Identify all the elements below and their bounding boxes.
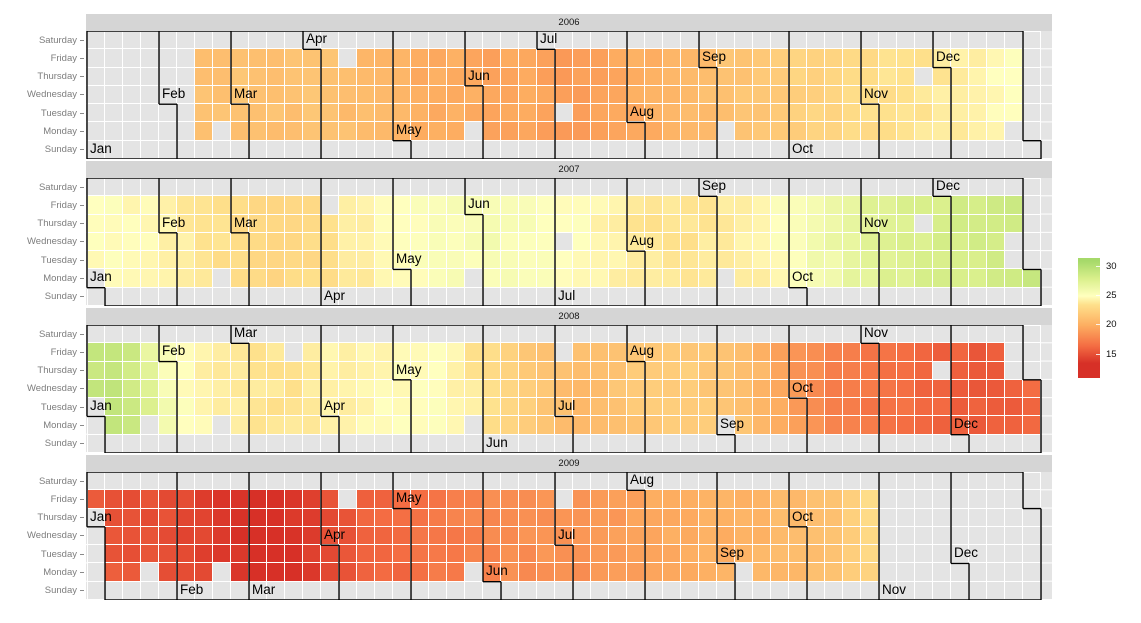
day-cell [483,251,501,269]
day-cell [969,472,987,490]
day-cell [195,509,213,527]
day-cell [393,31,411,49]
day-cell [213,343,231,361]
day-cell [339,196,357,214]
day-cell [537,86,555,104]
month-label: Aug [628,470,654,490]
day-cell [591,398,609,416]
day-cell [501,380,519,398]
day-cell [951,490,969,508]
day-cell [771,288,789,306]
day-cell [519,251,537,269]
day-cell [483,582,501,600]
day-cell [933,215,951,233]
month-label: Apr [322,396,345,416]
day-cell [645,122,663,140]
day-cell [501,49,519,67]
day-cell [483,398,501,416]
month-label: Feb [160,341,185,361]
day-cell [807,343,825,361]
day-cell [519,343,537,361]
month-label: Oct [790,378,813,398]
day-cell [429,416,447,434]
day-cell [537,416,555,434]
day-cell [141,398,159,416]
day-cell [213,233,231,251]
axis-tick [80,278,84,279]
day-cell [753,251,771,269]
day-cell [861,509,879,527]
day-cell [285,122,303,140]
axis-tick [80,535,84,536]
day-cell [105,362,123,380]
day-cell [573,86,591,104]
day-cell [681,490,699,508]
day-cell [609,398,627,416]
day-cell [465,141,483,159]
day-cell [447,343,465,361]
day-cell [249,490,267,508]
day-cell [447,251,465,269]
day-cell [267,251,285,269]
day-cell [915,325,933,343]
day-cell [213,49,231,67]
day-cell [249,509,267,527]
colorbar-legend: 30252015 [1078,258,1138,378]
day-cell [195,380,213,398]
day-cell [1005,343,1023,361]
axis-tick [80,149,84,150]
month-label: Feb [160,84,185,104]
day-cell [951,563,969,581]
day-cell [339,104,357,122]
day-cell [789,196,807,214]
day-cell [1005,509,1023,527]
day-cell [123,122,141,140]
day-cell [789,233,807,251]
day-cell [825,490,843,508]
day-cell [177,416,195,434]
day-cell [591,343,609,361]
day-cell [213,527,231,545]
day-cell [951,509,969,527]
day-cell [465,251,483,269]
day-cell [609,563,627,581]
day-cell [789,398,807,416]
day-cell [501,86,519,104]
day-cell [609,325,627,343]
day-cell [699,269,717,287]
day-cell [285,582,303,600]
facet-panel: JanFebMarAprMayJunJulAugSepOctNovDec [86,178,1052,306]
weekday-label: Thursday [0,362,86,380]
day-cell [393,196,411,214]
day-cell [555,251,573,269]
day-cell [915,416,933,434]
day-cell [141,288,159,306]
day-cell [897,545,915,563]
weekday-label: Saturday [0,472,86,490]
day-cell [987,122,1005,140]
day-cell [231,141,249,159]
axis-tick [80,517,84,518]
day-cell [879,233,897,251]
day-cell [87,49,105,67]
day-cell [321,141,339,159]
day-cell [699,563,717,581]
day-cell [699,343,717,361]
facet-2009: 2009SaturdayFridayThursdayWednesdayTuesd… [0,455,1052,600]
day-cell [501,215,519,233]
day-cell [177,545,195,563]
day-cell [321,325,339,343]
day-cell [951,86,969,104]
month-label: Mar [250,580,275,600]
day-cell [735,582,753,600]
day-cell [105,31,123,49]
day-cell [249,416,267,434]
day-cell [879,416,897,434]
day-cell [141,527,159,545]
day-cell [645,178,663,196]
day-cell [609,472,627,490]
day-cell [465,398,483,416]
day-cell [231,509,249,527]
facet-panel: JanFebMarAprMayJunJulAugSepOctNovDec [86,31,1052,159]
day-cell [591,233,609,251]
day-cell [663,490,681,508]
day-cell [267,509,285,527]
day-cell [195,122,213,140]
day-cell [825,49,843,67]
day-cell [519,196,537,214]
day-cell [645,398,663,416]
day-cell-grid [87,325,1041,453]
day-cell [429,68,447,86]
month-label: Apr [322,525,345,545]
day-cell [771,416,789,434]
day-cell [375,68,393,86]
day-cell [447,49,465,67]
day-cell [1005,325,1023,343]
day-cell [879,527,897,545]
day-cell [735,288,753,306]
day-cell [519,472,537,490]
day-cell [663,196,681,214]
day-cell [303,141,321,159]
day-cell [519,178,537,196]
day-cell [933,269,951,287]
day-cell [87,68,105,86]
day-cell [969,343,987,361]
day-cell [825,31,843,49]
day-cell [735,68,753,86]
month-label: Dec [934,47,960,67]
day-cell [447,269,465,287]
day-cell [159,288,177,306]
day-cell [447,104,465,122]
day-cell [339,178,357,196]
day-cell [681,68,699,86]
day-cell [735,472,753,490]
day-cell [501,178,519,196]
day-cell [969,490,987,508]
weekday-label: Tuesday [0,545,86,563]
day-cell [663,86,681,104]
day-cell [573,288,591,306]
day-cell [627,122,645,140]
day-cell [789,472,807,490]
month-label: Jun [484,433,508,453]
day-cell [1023,233,1041,251]
day-cell [159,49,177,67]
day-cell [105,215,123,233]
day-cell [303,563,321,581]
day-cell [357,509,375,527]
day-cell [681,196,699,214]
day-cell [447,545,465,563]
day-cell [753,86,771,104]
day-cell [483,527,501,545]
month-label: Jun [466,194,490,214]
day-cell [735,380,753,398]
day-cell [375,288,393,306]
day-cell [897,104,915,122]
day-cell [1005,582,1023,600]
day-cell [303,104,321,122]
day-cell [717,196,735,214]
day-cell [321,178,339,196]
day-cell [735,343,753,361]
day-cell [123,343,141,361]
day-cell [591,288,609,306]
day-cell [447,563,465,581]
day-cell [231,398,249,416]
day-cell [1023,435,1041,453]
month-label: Aug [628,102,654,122]
day-cell [393,416,411,434]
day-cell [771,269,789,287]
day-cell [969,380,987,398]
day-cell [807,86,825,104]
day-cell [825,104,843,122]
day-cell [231,251,249,269]
day-cell [825,233,843,251]
day-cell [141,251,159,269]
day-cell [393,288,411,306]
day-cell [1005,416,1023,434]
day-cell [879,269,897,287]
day-cell [267,288,285,306]
day-cell [555,141,573,159]
day-cell [987,416,1005,434]
day-cell [123,49,141,67]
day-cell [897,251,915,269]
day-cell [141,380,159,398]
day-cell [699,509,717,527]
day-cell [591,563,609,581]
day-cell [681,545,699,563]
day-cell [987,68,1005,86]
day-cell [321,343,339,361]
day-cell [429,325,447,343]
day-cell [789,215,807,233]
day-cell [411,582,429,600]
day-cell [609,362,627,380]
day-cell [321,233,339,251]
day-cell [807,68,825,86]
day-cell [555,104,573,122]
day-cell [267,215,285,233]
day-cell [465,362,483,380]
day-cell [663,362,681,380]
day-cell [537,178,555,196]
day-cell [609,49,627,67]
axis-tick [80,187,84,188]
weekday-label: Saturday [0,31,86,49]
day-cell [411,398,429,416]
day-cell [303,233,321,251]
day-cell [537,398,555,416]
day-cell [393,398,411,416]
day-cell [897,435,915,453]
day-cell [465,527,483,545]
day-cell [681,343,699,361]
facet-title: 2009 [558,458,579,469]
calendar-heatmap-figure: 2006SaturdayFridayThursdayWednesdayTuesd… [0,0,1141,623]
day-cell [807,398,825,416]
day-cell [717,233,735,251]
day-cell [609,178,627,196]
day-cell [285,435,303,453]
day-cell [609,380,627,398]
day-cell [573,68,591,86]
day-cell [573,325,591,343]
day-cell [753,31,771,49]
day-cell [1023,325,1041,343]
day-cell [951,233,969,251]
day-cell [699,325,717,343]
day-cell [375,582,393,600]
day-cell [951,251,969,269]
day-cell [483,104,501,122]
day-cell [555,49,573,67]
day-cell [663,215,681,233]
day-cell [483,269,501,287]
day-cell [249,527,267,545]
day-cell [1005,269,1023,287]
month-label: May [394,120,422,140]
day-cell [231,582,249,600]
month-label: Mar [232,213,257,233]
day-cell [735,31,753,49]
day-cell [141,233,159,251]
day-cell [573,31,591,49]
day-cell [591,509,609,527]
day-cell [393,325,411,343]
axis-tick [80,572,84,573]
day-cell [933,509,951,527]
day-cell [591,68,609,86]
day-cell [843,31,861,49]
day-cell [663,269,681,287]
day-cell [87,104,105,122]
day-cell [915,104,933,122]
axis-tick [80,407,84,408]
day-cell [519,490,537,508]
day-cell [411,527,429,545]
day-cell [249,104,267,122]
day-cell-grid [87,31,1041,159]
month-label: Sep [718,543,744,563]
day-cell [591,86,609,104]
day-cell [771,141,789,159]
day-cell [519,68,537,86]
day-cell [1005,104,1023,122]
day-cell [501,288,519,306]
day-cell [843,215,861,233]
day-cell [735,122,753,140]
day-cell [159,362,177,380]
day-cell [861,343,879,361]
day-cell [519,269,537,287]
day-cell [393,527,411,545]
day-cell [753,472,771,490]
day-cell [501,68,519,86]
day-cell [717,104,735,122]
day-cell [843,178,861,196]
day-cell [717,122,735,140]
day-cell [123,490,141,508]
day-cell [591,269,609,287]
day-cell [141,31,159,49]
day-cell [951,196,969,214]
day-cell [357,490,375,508]
day-cell [987,472,1005,490]
weekday-label: Friday [0,49,86,67]
facet-strip: 2009 [86,455,1052,472]
day-cell [411,31,429,49]
day-cell [681,563,699,581]
day-cell [807,527,825,545]
day-cell [753,380,771,398]
day-cell [1023,196,1041,214]
day-cell [339,325,357,343]
day-cell [231,233,249,251]
day-cell [213,141,231,159]
day-cell [663,104,681,122]
day-cell [213,269,231,287]
day-cell [303,398,321,416]
day-cell [231,362,249,380]
day-cell [375,49,393,67]
day-cell [987,233,1005,251]
day-cell [393,380,411,398]
axis-tick [80,113,84,114]
day-cell [987,582,1005,600]
day-cell [429,251,447,269]
day-cell [411,288,429,306]
day-cell [789,31,807,49]
day-cell [267,325,285,343]
day-cell [357,233,375,251]
day-cell [411,435,429,453]
day-cell [141,343,159,361]
day-cell [141,416,159,434]
day-cell [231,288,249,306]
day-cell [501,251,519,269]
day-cell [771,398,789,416]
